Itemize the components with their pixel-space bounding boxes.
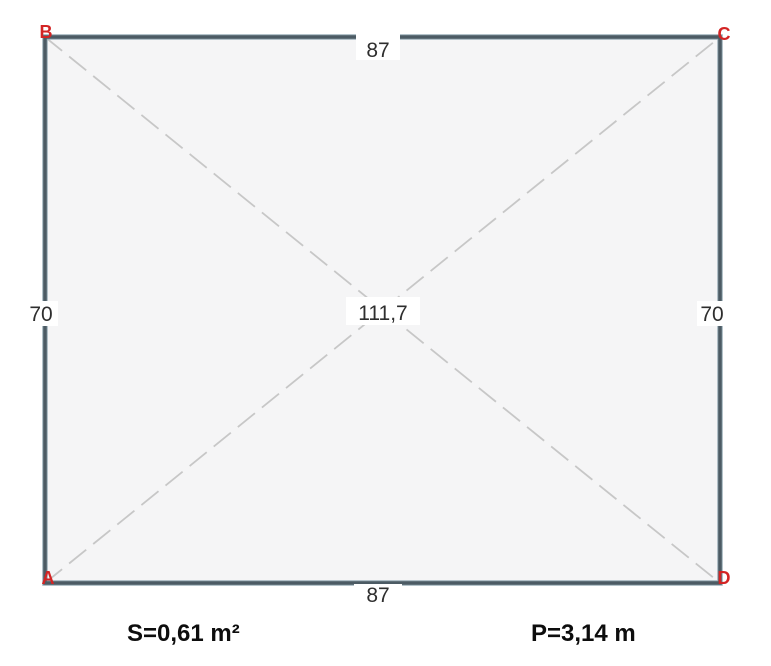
diagonal-dimension-label: 111,7 bbox=[358, 302, 407, 325]
right-dimension-label: 70 bbox=[700, 303, 723, 326]
figure-svg: 111,7 87 87 70 70 B C A D S=0,61 m² P=3,… bbox=[0, 0, 771, 666]
vertex-label-d: D bbox=[718, 568, 731, 588]
bottom-dimension-label: 87 bbox=[366, 584, 389, 607]
measurement-canvas: 111,7 87 87 70 70 B C A D S=0,61 m² P=3,… bbox=[0, 0, 771, 666]
top-dimension-label: 87 bbox=[366, 39, 389, 62]
area-summary-label: S=0,61 m² bbox=[127, 620, 240, 647]
perimeter-summary-label: P=3,14 m bbox=[531, 620, 636, 647]
left-dimension-label: 70 bbox=[29, 303, 52, 326]
vertex-label-a: A bbox=[42, 568, 55, 588]
vertex-label-b: B bbox=[40, 22, 53, 42]
vertex-label-c: C bbox=[718, 24, 731, 44]
